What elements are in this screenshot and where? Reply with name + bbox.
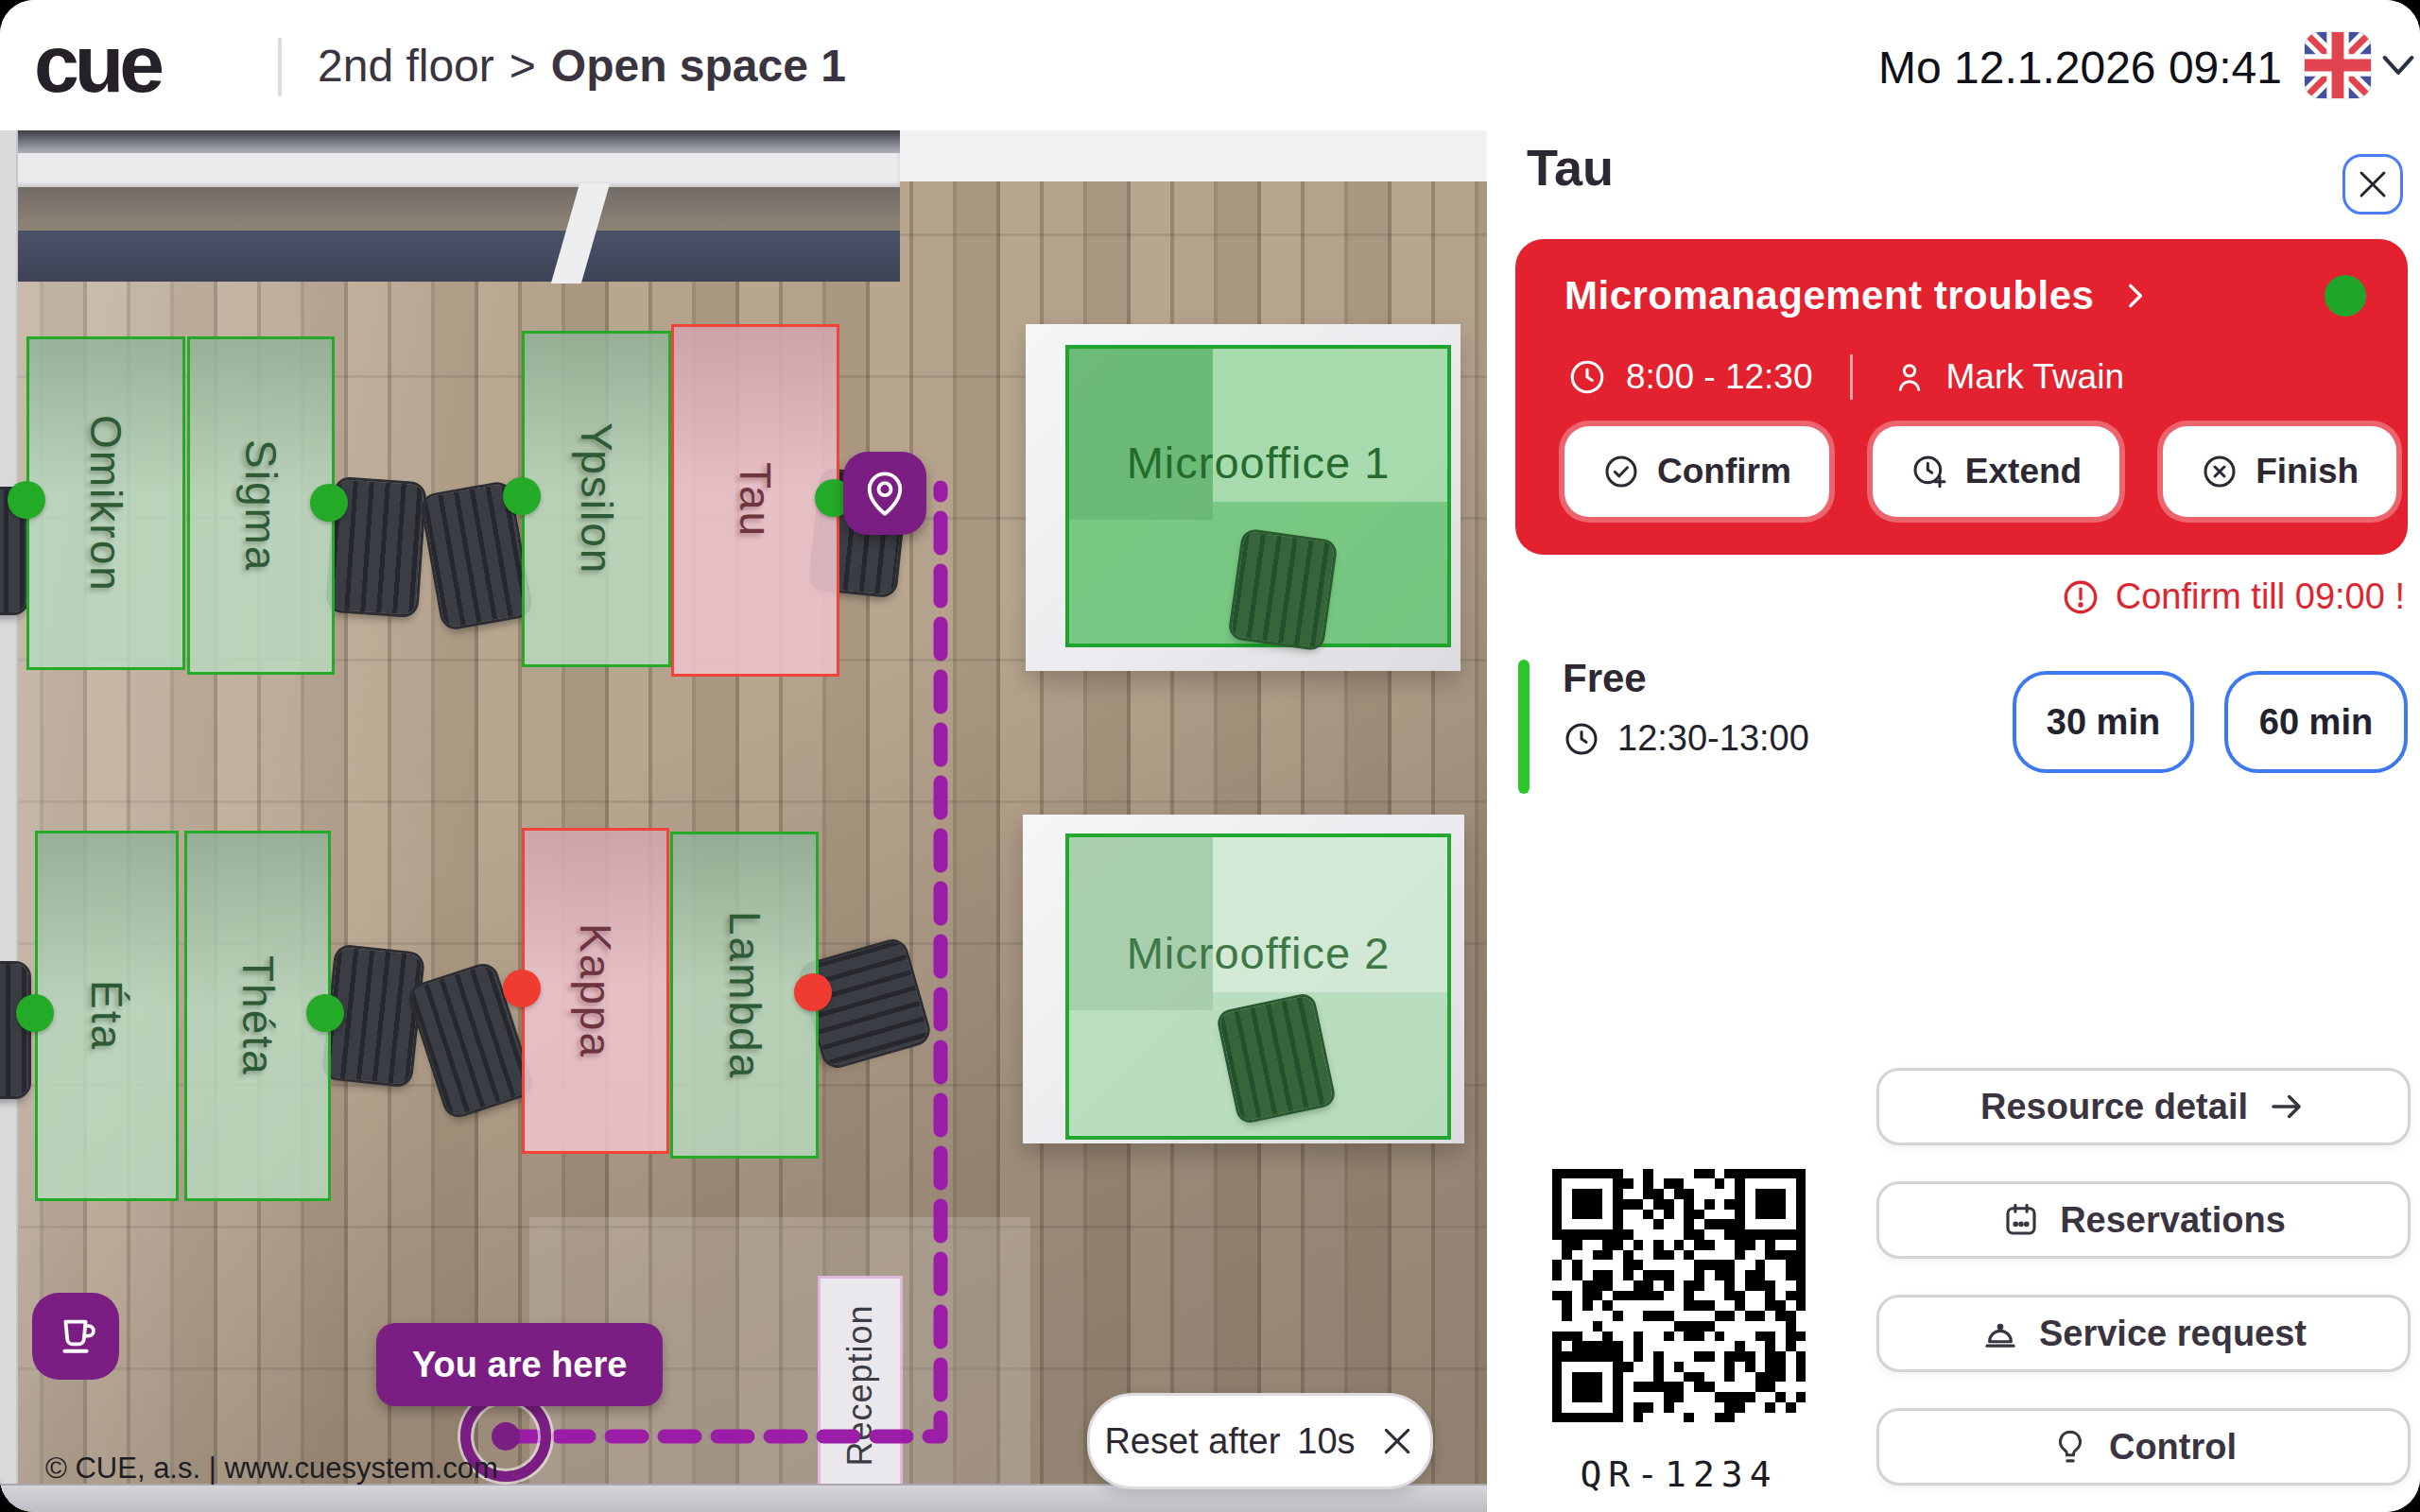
presence-dot-omikron [8, 481, 45, 519]
reservation-status-dot [2325, 275, 2366, 317]
desk-label: Sigma [235, 439, 286, 572]
panel-title: Tau [1527, 138, 1614, 197]
service-request-label: Service request [2039, 1314, 2307, 1354]
top-bar: cue 2nd floor>Open space 1 Mo 12.1.2026 … [0, 0, 2420, 130]
room-label: Microoffice 2 [1127, 927, 1391, 979]
breadcrumb-floor[interactable]: 2nd floor [318, 41, 494, 91]
desk-label: Omikron [80, 415, 131, 593]
calendar-icon [2001, 1200, 2041, 1240]
close-panel-button[interactable] [2342, 154, 2403, 215]
reservation-title[interactable]: Micromanagement troubles [1564, 273, 2094, 318]
datetime-label: Mo 12.1.2026 09:41 [1878, 42, 2282, 94]
confirm-button[interactable]: Confirm [1564, 426, 1829, 517]
window-strip [0, 130, 900, 153]
destination-pin-marker [843, 452, 926, 535]
presence-dot-ypsilon [503, 477, 541, 515]
chevron-right-icon [2118, 280, 2151, 312]
presence-dot-sigma [310, 484, 348, 522]
presence-dot-eta [16, 994, 54, 1032]
you-are-here-label: You are here [376, 1323, 663, 1406]
reset-label: Reset after [1104, 1421, 1280, 1462]
left-wall [0, 130, 18, 1512]
qr-code-label: QR-1234 [1531, 1453, 1826, 1495]
reservation-info-row: 8:00 - 12:30 Mark Twain [1567, 354, 2124, 400]
reservation-time: 8:00 - 12:30 [1626, 357, 1812, 397]
desk-label: Ypsilon [571, 422, 622, 575]
desk-label: Théta [233, 955, 284, 1076]
desk-label: Éta [81, 980, 132, 1051]
book-30-min-button[interactable]: 30 min [2013, 671, 2194, 773]
breadcrumb[interactable]: 2nd floor>Open space 1 [318, 40, 846, 92]
alert-circle-icon [2061, 577, 2100, 617]
reset-countdown: 10s [1297, 1421, 1355, 1462]
qr-code [1531, 1148, 1826, 1443]
breadcrumb-separator: > [510, 41, 536, 91]
coffee-amenity-button[interactable] [32, 1293, 119, 1380]
presence-dot-kappa [503, 970, 541, 1007]
office-chair [0, 964, 28, 1096]
cue-logo: cue [34, 17, 160, 111]
reservation-organizer: Mark Twain [1945, 357, 2124, 397]
desk-label: Lambda [719, 911, 770, 1079]
control-button[interactable]: Control [1876, 1408, 2411, 1486]
desk-eta[interactable]: Éta [35, 831, 179, 1201]
glass-strip [0, 187, 900, 231]
x-circle-icon [2201, 453, 2238, 490]
clock-icon [1563, 720, 1600, 758]
desk-ypsilon[interactable]: Ypsilon [522, 331, 671, 667]
floor-plan-map[interactable]: Omikron Sigma Ypsilon Tau Éta Théta Kapp… [0, 130, 1487, 1512]
resource-detail-button[interactable]: Resource detail [1876, 1068, 2411, 1145]
lightbulb-icon [2050, 1427, 2090, 1467]
carpet-strip [0, 231, 900, 282]
resource-detail-panel: Tau Micromanagement troubles 8:00 - 12:3… [1487, 130, 2420, 1512]
free-slot-time: 12:30-13:00 [1617, 718, 1809, 759]
reservation-card: Micromanagement troubles 8:00 - 12:30 Ma… [1515, 239, 2408, 555]
person-icon [1891, 358, 1928, 396]
desk-omikron[interactable]: Omikron [26, 336, 185, 670]
uk-flag-icon[interactable] [2305, 32, 2371, 98]
close-icon [2356, 167, 2390, 201]
building-facade [0, 130, 900, 282]
reception-label: Reception [840, 1304, 880, 1466]
presence-dot-theta [306, 994, 344, 1032]
reservations-label: Reservations [2060, 1200, 2286, 1241]
office-chair [1231, 531, 1336, 648]
extend-label: Extend [1965, 452, 2082, 491]
room-label: Microoffice 1 [1127, 437, 1391, 489]
control-label: Control [2109, 1427, 2237, 1468]
language-chevron-down-icon[interactable] [2380, 53, 2416, 77]
free-slot-time-row: 12:30-13:00 [1563, 718, 1809, 759]
reception-area: Reception [818, 1276, 903, 1495]
resource-detail-label: Resource detail [1980, 1087, 2248, 1127]
reservations-button[interactable]: Reservations [1876, 1181, 2411, 1259]
topbar-divider [278, 38, 282, 96]
close-icon [1378, 1422, 1416, 1460]
clock-icon [1567, 357, 1607, 397]
reservation-actions-row: Confirm Extend Finish [1564, 426, 2396, 517]
finish-label: Finish [2256, 452, 2359, 491]
arrow-right-icon [2267, 1087, 2307, 1126]
reservation-title-row[interactable]: Micromanagement troubles [1564, 273, 2366, 318]
wall-strip [0, 153, 900, 187]
service-request-button[interactable]: Service request [1876, 1295, 2411, 1372]
clock-plus-icon [1910, 453, 1948, 490]
desk-kappa[interactable]: Kappa [522, 828, 669, 1154]
confirm-label: Confirm [1657, 452, 1791, 491]
reset-countdown-button[interactable]: Reset after 10s [1087, 1393, 1433, 1489]
desk-label: Tau [730, 462, 781, 538]
cloche-icon [1980, 1314, 2020, 1353]
check-circle-icon [1602, 453, 1640, 490]
extend-button[interactable]: Extend [1873, 426, 2119, 517]
desk-label: Kappa [570, 923, 621, 1058]
top-wall-right [900, 130, 1487, 181]
free-slot-bar [1518, 660, 1530, 794]
warning-text: Confirm till 09:00 ! [2116, 576, 2405, 617]
copyright-label: © CUE, a.s. | www.cuesystem.com [45, 1452, 498, 1486]
presence-dot-lambda [794, 973, 832, 1011]
free-slot-status: Free [1563, 656, 1647, 701]
breadcrumb-room: Open space 1 [551, 41, 846, 91]
book-60-min-button[interactable]: 60 min [2224, 671, 2408, 773]
finish-button[interactable]: Finish [2163, 426, 2396, 517]
cue-kiosk-app: cue 2nd floor>Open space 1 Mo 12.1.2026 … [0, 0, 2420, 1512]
vertical-divider [1850, 354, 1853, 400]
confirm-warning: Confirm till 09:00 ! [2061, 576, 2405, 617]
